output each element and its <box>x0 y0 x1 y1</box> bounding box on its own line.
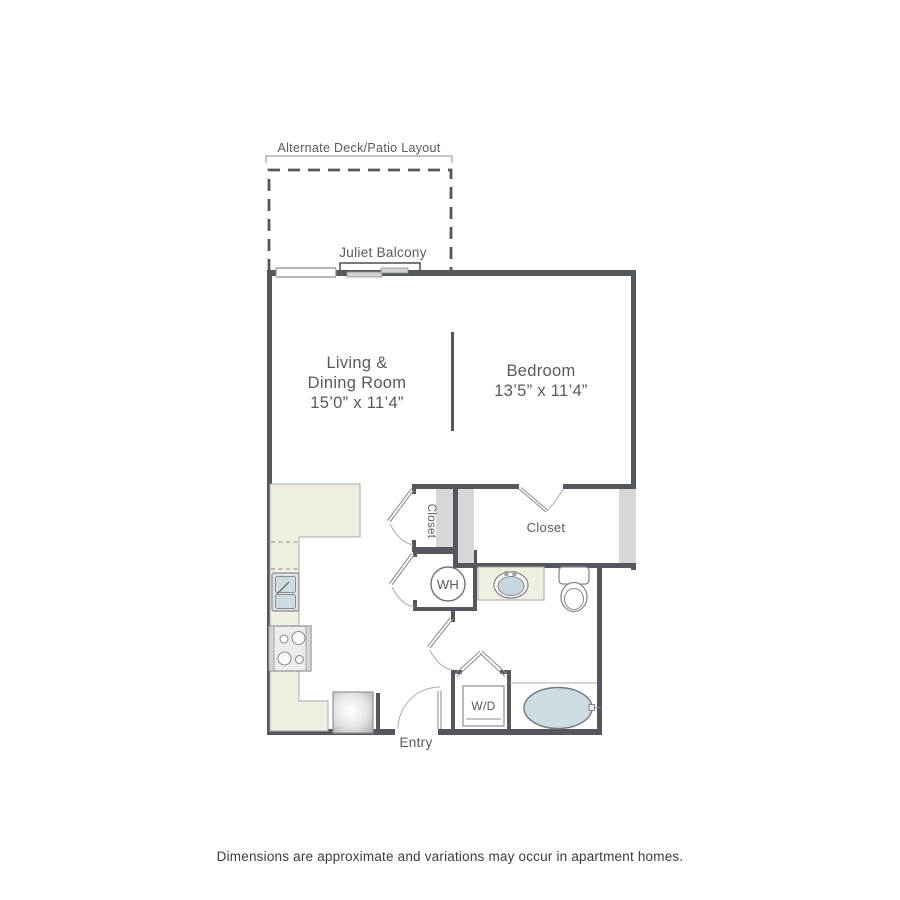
floorplan-canvas: Alternate Deck/Patio Layout Juliet Balco… <box>0 0 900 900</box>
window <box>276 268 336 277</box>
wall-bottom-right <box>438 729 602 735</box>
bedroom-closet-door <box>519 488 563 513</box>
sink-faucet <box>513 571 517 576</box>
wall-closet-top-b <box>563 484 636 489</box>
burner <box>280 635 288 643</box>
washer-dryer-label: W/D <box>471 699 495 713</box>
bedroom-closet-shelf-left <box>458 489 474 563</box>
wall-bath-right <box>597 565 602 735</box>
living-dining-label-line2: Dining Room <box>308 374 407 392</box>
tub-faucet <box>589 705 595 711</box>
toilet <box>559 567 589 612</box>
sink-faucet <box>505 571 509 576</box>
bathroom-door <box>428 618 454 671</box>
wall-room-divider <box>451 332 454 431</box>
washer-dryer: W/D <box>463 686 504 726</box>
small-closet-shelf <box>436 489 453 547</box>
living-dining-label-line1: Living & <box>326 354 387 372</box>
wall-wd-left <box>451 670 455 731</box>
entry-door <box>398 687 441 729</box>
bedroom-dimensions: 13’5” x 11’4” <box>494 382 587 400</box>
juliet-balcony-label: Juliet Balcony <box>339 245 427 260</box>
sliding-door-panel-left <box>347 272 382 277</box>
water-heater: WH <box>431 567 465 601</box>
floorplan-drawing: Alternate Deck/Patio Layout Juliet Balco… <box>0 0 900 900</box>
small-closet-label: Closet <box>425 504 437 539</box>
stove <box>269 626 311 671</box>
water-heater-door <box>390 554 415 608</box>
living-dining-dimensions: 15’0” x 11’4” <box>310 394 403 412</box>
burner <box>296 656 304 664</box>
wall-wh-stub-bottom <box>413 600 417 611</box>
sliding-door-panel-right <box>381 268 408 273</box>
bathtub <box>510 683 601 729</box>
wall-between-closets <box>453 484 458 568</box>
alternate-deck-label: Alternate Deck/Patio Layout <box>277 141 440 155</box>
bracket-line <box>266 156 452 163</box>
wall-wd-right <box>507 670 511 731</box>
burner <box>292 632 305 645</box>
refrigerator <box>333 692 373 733</box>
bedroom-closet-label: Closet <box>527 520 566 535</box>
small-closet-door <box>388 489 415 546</box>
burner <box>278 652 291 665</box>
bedroom-closet-shelf-right <box>619 489 636 563</box>
wall-closet-top-a <box>412 484 519 489</box>
disclaimer-text: Dimensions are approximate and variation… <box>0 849 900 864</box>
water-heater-label: WH <box>437 577 459 592</box>
washer-dryer-bifold-doors <box>455 651 507 677</box>
bedroom-label: Bedroom <box>506 362 575 380</box>
kitchen-sink <box>272 573 299 611</box>
wall-wh-bottom <box>413 607 477 611</box>
entry-label: Entry <box>399 735 432 750</box>
bathroom-sink <box>494 571 528 598</box>
wall-entry-stub <box>376 693 380 731</box>
